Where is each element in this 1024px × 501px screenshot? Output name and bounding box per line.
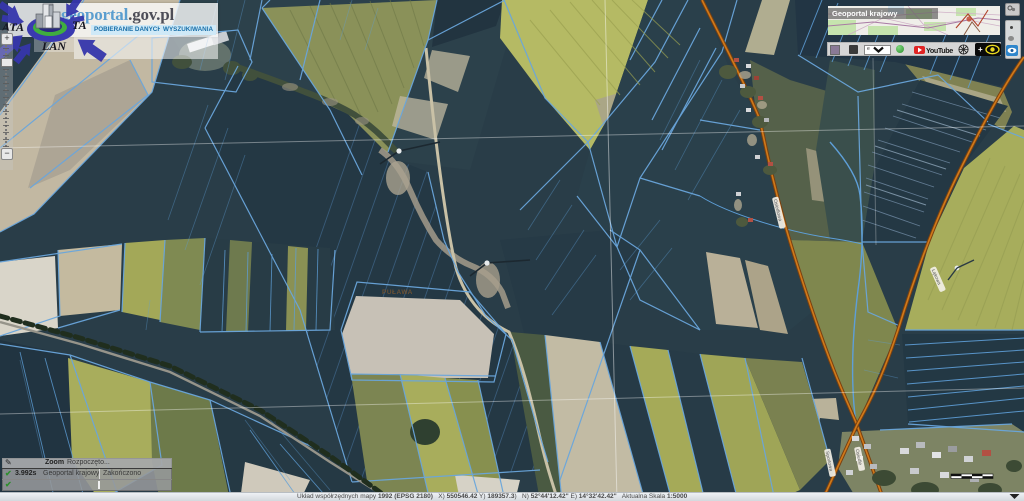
svg-text:Geoportal krajowy: Geoportal krajowy [832, 9, 898, 18]
svg-text:LAN: LAN [41, 39, 67, 53]
svg-text:TA: TA [72, 18, 87, 32]
svg-text:PUŁAWA: PUŁAWA [382, 289, 413, 296]
